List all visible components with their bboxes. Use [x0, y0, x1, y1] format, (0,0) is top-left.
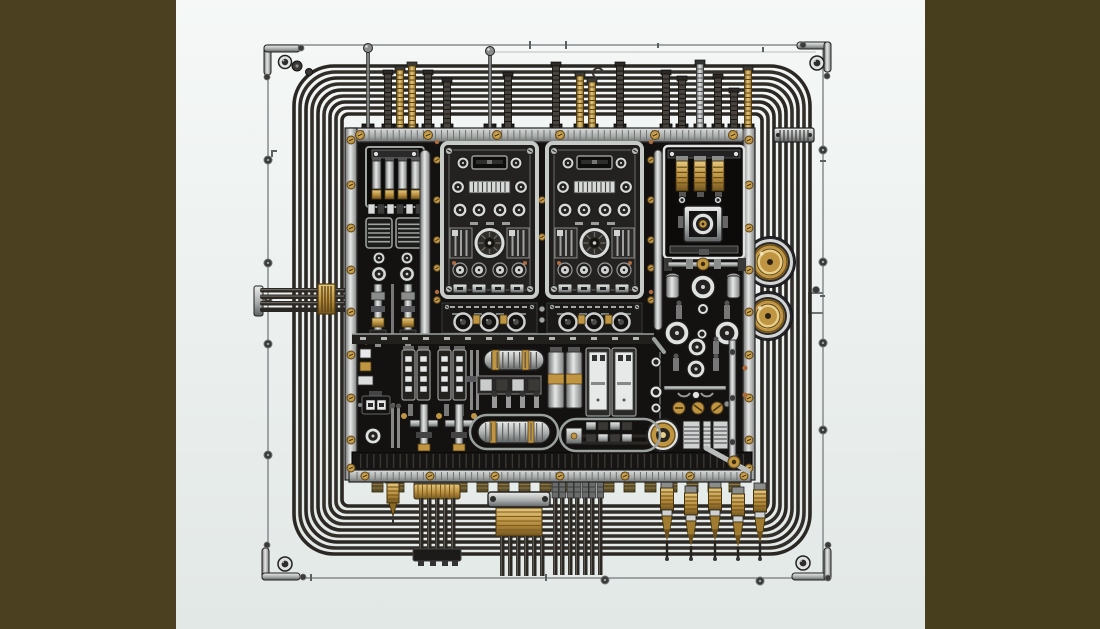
- steel-screw: [632, 148, 639, 155]
- frame-screw: [756, 577, 764, 585]
- control-unit-illustration: [0, 0, 1100, 629]
- vertical-divider-bar: [420, 150, 430, 338]
- brass-screw: [556, 472, 564, 480]
- rail-stub: [519, 481, 530, 492]
- knob: [558, 203, 572, 217]
- steel-screw: [551, 148, 558, 155]
- fuse-block: [366, 147, 424, 207]
- rail-stub: [624, 481, 635, 492]
- panel-grille: [612, 228, 634, 258]
- steel-screw: [527, 286, 534, 293]
- frame-screw: [264, 340, 272, 348]
- round-connector: [560, 314, 577, 331]
- panel-slot-display: [472, 156, 507, 169]
- panel-big-knob: [579, 227, 611, 259]
- brass-screw: [347, 136, 355, 144]
- brass-screw: [356, 131, 365, 140]
- brass-screw: [745, 351, 753, 359]
- panel-slot-display: [577, 156, 612, 169]
- knob: [472, 203, 486, 217]
- brass-screw: [434, 265, 441, 272]
- dip-block: [417, 346, 430, 400]
- panel-grille: [507, 228, 529, 258]
- brass-screw: [648, 297, 655, 304]
- brass-screw: [424, 131, 433, 140]
- knob: [598, 203, 612, 217]
- connector-strip: [442, 303, 537, 333]
- connector-strip: [547, 303, 642, 333]
- knob: [472, 263, 486, 277]
- ring-knob: [365, 428, 381, 444]
- brass-screw: [347, 394, 355, 402]
- frame-screw: [264, 259, 272, 267]
- brass-screw: [434, 197, 441, 204]
- brass-screw: [729, 131, 738, 140]
- knob: [562, 157, 574, 169]
- brass-screw: [745, 266, 753, 274]
- brass-screw: [740, 472, 748, 480]
- brass-screw: [347, 266, 355, 274]
- knob: [620, 181, 633, 194]
- round-connector: [481, 314, 498, 331]
- knob: [453, 263, 467, 277]
- round-connector: [613, 314, 630, 331]
- dip-block: [453, 346, 466, 400]
- steel-screw: [632, 286, 639, 293]
- knob: [493, 203, 507, 217]
- brass-screw: [648, 197, 655, 204]
- brass-round-connector: [647, 419, 679, 451]
- brass-screw: [539, 197, 546, 204]
- frame-screw: [819, 426, 827, 434]
- frame-screw: [264, 156, 272, 164]
- brass-screw: [347, 436, 355, 444]
- brass-screw: [745, 308, 753, 316]
- brass-screw: [347, 308, 355, 316]
- knob: [617, 263, 631, 277]
- knob: [400, 267, 415, 282]
- bracket-screw: [813, 287, 820, 294]
- round-connector: [586, 314, 603, 331]
- brass-screw: [434, 157, 441, 164]
- brass-screw: [745, 224, 753, 232]
- brass-screw: [426, 472, 434, 480]
- dip-block: [402, 346, 415, 400]
- rail-stub: [498, 481, 509, 492]
- panel-grille: [450, 228, 472, 258]
- knob: [452, 181, 465, 194]
- brass-screw: [491, 472, 499, 480]
- frame-screw: [819, 146, 827, 154]
- bolt-rod: [391, 408, 394, 448]
- knob: [515, 181, 528, 194]
- harness-clamp: [774, 128, 814, 142]
- brass-screw: [361, 472, 369, 480]
- round-connector: [508, 314, 525, 331]
- frame-screw: [264, 451, 272, 459]
- rail-stub: [540, 481, 551, 492]
- brass-screw: [745, 181, 753, 189]
- knob: [617, 203, 631, 217]
- brass-screw: [347, 351, 355, 359]
- steel-screw: [445, 305, 450, 310]
- brass-screw: [648, 265, 655, 272]
- control-panel: [547, 143, 642, 297]
- frame-screw: [819, 258, 827, 266]
- manifold-cylinder: [484, 350, 544, 370]
- brass-screw: [434, 297, 441, 304]
- control-panel: [442, 143, 537, 297]
- frame-screw: [819, 339, 827, 347]
- frame-screw: [601, 576, 609, 584]
- fuse-subpanel: [664, 146, 744, 258]
- panel-grille: [555, 228, 577, 258]
- rail-stub: [477, 481, 488, 492]
- brass-screw: [648, 157, 655, 164]
- brass-screw: [686, 472, 694, 480]
- brass-fuse: [676, 156, 724, 197]
- knob: [557, 181, 570, 194]
- valve-knob-cluster: [665, 274, 740, 346]
- knob: [457, 157, 469, 169]
- panel-ruler-bar: [574, 181, 615, 193]
- round-connector: [455, 314, 472, 331]
- knob: [615, 157, 627, 169]
- bolt-rod: [397, 408, 400, 448]
- right-olive-bar: [925, 0, 1100, 629]
- steel-screw: [551, 286, 558, 293]
- steel-screw: [635, 305, 640, 310]
- knob: [493, 263, 507, 277]
- wire-bundle: [413, 481, 461, 566]
- illustration-stage: [0, 0, 1100, 629]
- knob: [577, 263, 591, 277]
- left-olive-bar: [0, 0, 176, 629]
- rail-stub: [372, 481, 383, 492]
- knob: [510, 157, 522, 169]
- knob: [577, 203, 591, 217]
- steel-screw: [446, 148, 453, 155]
- brass-screw: [745, 436, 753, 444]
- steel-screw: [446, 286, 453, 293]
- knob: [372, 267, 387, 282]
- brass-screw: [648, 237, 655, 244]
- knob: [373, 252, 385, 264]
- brass-screw: [745, 136, 753, 144]
- square-knob-mount: [678, 206, 728, 242]
- vertical-divider-bar: [654, 150, 662, 330]
- brass-screw: [621, 472, 629, 480]
- brass-screw: [347, 181, 355, 189]
- knob: [512, 263, 526, 277]
- knob: [453, 203, 467, 217]
- knob: [558, 263, 572, 277]
- brass-screw: [347, 224, 355, 232]
- brass-screw: [556, 131, 565, 140]
- panel-big-knob: [474, 227, 506, 259]
- knob: [512, 203, 526, 217]
- rail-stub: [603, 481, 614, 492]
- panel-ruler-bar: [469, 181, 510, 193]
- steel-screw: [550, 305, 555, 310]
- dip-block: [438, 346, 451, 400]
- brass-screw: [493, 131, 502, 140]
- knob: [598, 263, 612, 277]
- rail-stub: [645, 481, 656, 492]
- cable-brass-collar: [318, 284, 335, 314]
- knob: [401, 252, 413, 264]
- brass-screw: [347, 464, 355, 472]
- brass-screw: [434, 237, 441, 244]
- brass-screw: [651, 131, 660, 140]
- brass-screw: [539, 234, 546, 241]
- steel-screw: [527, 148, 534, 155]
- steel-screw: [530, 305, 535, 310]
